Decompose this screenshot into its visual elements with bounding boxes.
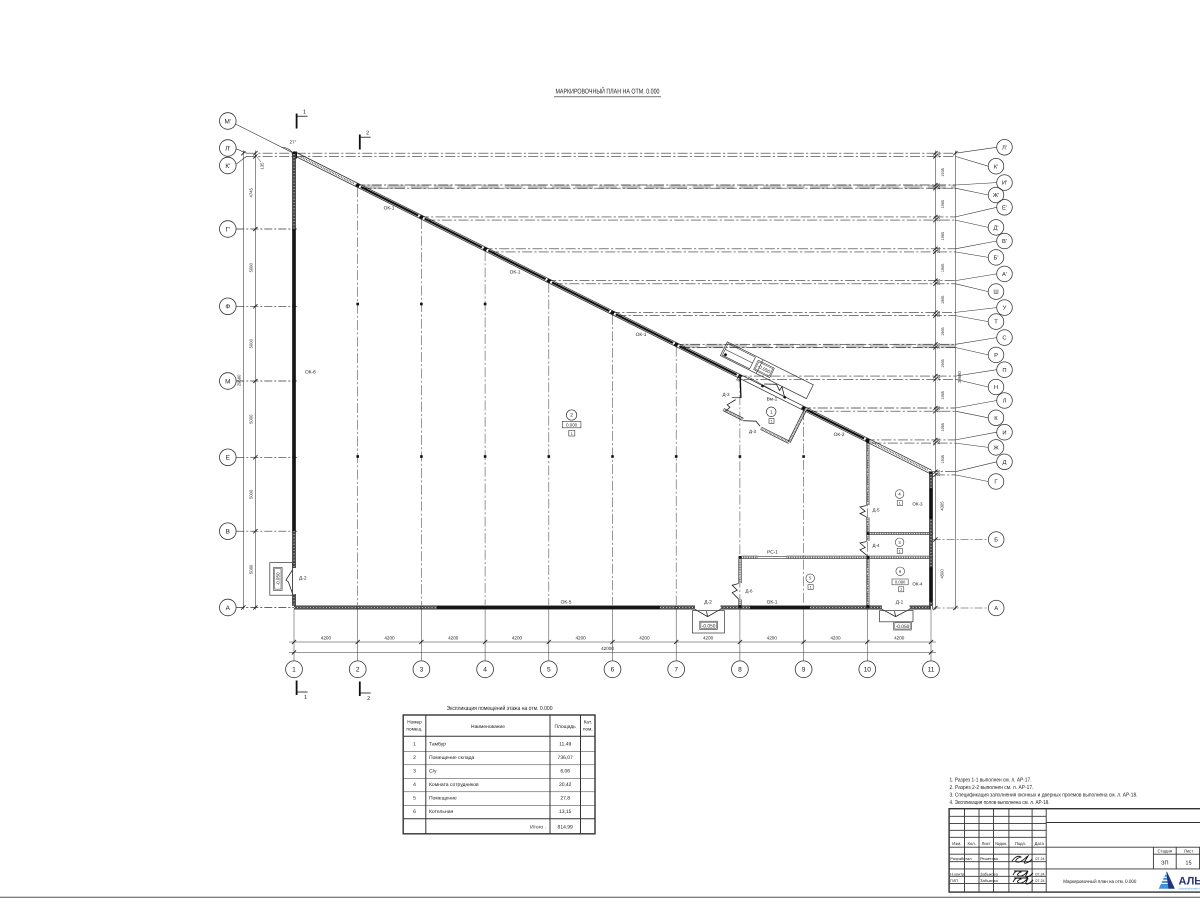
svg-text:-0.050: -0.050 [275,572,280,585]
svg-text:07.24: 07.24 [1035,872,1044,876]
svg-text:1: 1 [810,586,812,590]
svg-text:ОК-6: ОК-6 [305,370,316,376]
svg-text:ОК-1: ОК-1 [510,270,521,276]
svg-text:1965: 1965 [941,264,945,272]
svg-text:1965: 1965 [941,423,945,431]
svg-text:1965: 1965 [941,327,945,335]
svg-text:27°: 27° [290,140,297,145]
svg-text:Д-6: Д-6 [746,589,754,594]
svg-text:195: 195 [937,343,941,349]
svg-text:20,42: 20,42 [559,782,572,788]
svg-text:-0.050: -0.050 [702,623,716,629]
svg-text:135: 135 [260,162,265,170]
svg-text:Ж: Ж [993,446,999,452]
svg-text:29680: 29680 [237,374,242,386]
svg-text:1: 1 [304,695,307,701]
svg-text:4500: 4500 [940,568,945,578]
svg-text:Б: Б [994,538,998,544]
svg-text:Л': Л' [1002,145,1007,151]
svg-text:ОК-3: ОК-3 [912,502,923,507]
svg-text:195: 195 [937,406,941,412]
svg-text:6: 6 [611,667,615,674]
svg-text:5000: 5000 [249,414,254,424]
svg-text:2: 2 [367,696,370,702]
svg-text:РС-1: РС-1 [767,549,778,555]
svg-text:1: 1 [899,549,901,553]
svg-text:4745: 4745 [249,187,254,197]
svg-text:Лист: Лист [982,841,991,846]
svg-text:814,99: 814,99 [558,824,574,830]
svg-text:5080: 5080 [249,262,254,272]
svg-text:07.24: 07.24 [1035,857,1044,861]
svg-text:Е: Е [226,455,230,462]
svg-text:1: 1 [571,432,573,436]
svg-text:07.24: 07.24 [1035,879,1044,883]
svg-text:Д-3: Д-3 [749,429,757,434]
svg-text:В': В' [1002,239,1007,245]
svg-text:1965: 1965 [941,200,945,208]
svg-text:Д-1: Д-1 [896,599,904,605]
svg-text:Ш: Ш [993,290,998,296]
svg-text:5: 5 [413,796,416,802]
svg-text:4200: 4200 [448,636,459,641]
svg-text:2: 2 [900,588,902,592]
svg-text:Разработал: Разработал [950,856,971,861]
svg-text:8: 8 [738,667,742,674]
svg-text:М: М [225,378,230,385]
svg-text:Площадь: Площадь [555,724,577,730]
svg-text:1965: 1965 [941,232,945,240]
svg-text:Д-2: Д-2 [299,576,307,582]
svg-text:П: П [1002,368,1006,374]
svg-text:1935: 1935 [941,455,945,463]
svg-text:Котельная: Котельная [429,809,453,815]
svg-text:7: 7 [674,667,678,674]
svg-text:МАРКИРОВОЧНЫЙ ПЛАН НА ОТМ. 0.0: МАРКИРОВОЧНЫЙ ПЛАН НА ОТМ. 0.000 [556,87,660,96]
svg-text:4305: 4305 [940,501,945,511]
svg-text:5: 5 [547,667,551,674]
svg-text:И: И [1002,430,1006,436]
svg-text:ЗП: ЗП [1161,861,1168,867]
svg-text:И': И' [1002,181,1007,187]
svg-text:4: 4 [483,667,487,674]
svg-text:1: 1 [771,419,773,423]
svg-text:А: А [994,606,998,612]
svg-text:1935: 1935 [941,168,945,176]
svg-text:Стадия: Стадия [1157,849,1172,854]
svg-text:строительная компания: строительная компания [1179,886,1200,890]
svg-text:29680: 29680 [957,371,962,383]
svg-text:№док.: №док. [995,841,1007,846]
svg-text:Лист: Лист [1184,849,1193,854]
svg-text:4200: 4200 [321,636,332,641]
svg-text:195: 195 [937,215,941,221]
svg-text:4. Экспликация полов выполнена: 4. Экспликация полов выполнена см. л. АР… [950,800,1050,806]
svg-text:1: 1 [899,502,901,506]
svg-text:-0.050: -0.050 [896,624,910,630]
svg-text:195: 195 [937,438,941,444]
svg-text:Д: Д [1003,460,1007,466]
svg-text:4200: 4200 [767,636,778,641]
svg-text:0.000: 0.000 [566,422,578,427]
svg-text:Р: Р [994,353,998,359]
svg-text:5000: 5000 [249,489,254,499]
svg-text:3: 3 [413,769,416,775]
svg-text:В: В [226,529,230,536]
svg-text:3: 3 [420,667,424,674]
svg-text:Помещение склада: Помещение склада [429,755,475,761]
svg-text:4200: 4200 [384,636,395,641]
svg-text:Подп.: Подп. [1015,841,1026,846]
svg-text:5080: 5080 [249,564,254,574]
svg-text:ГИП: ГИП [950,878,958,883]
svg-text:10: 10 [864,667,872,674]
svg-text:Экспликация помещений этажа на: Экспликация помещений этажа на отм. 0.00… [447,705,554,712]
svg-text:195: 195 [937,375,941,381]
svg-text:С: С [1002,335,1006,342]
svg-text:195: 195 [937,152,941,158]
svg-text:3. Спецификация заполнения око: 3. Спецификация заполнения оконных и две… [950,792,1138,799]
svg-text:Комната сотрудников: Комната сотрудников [429,782,479,788]
svg-text:пом.: пом. [583,727,593,732]
svg-text:А': А' [1002,272,1007,278]
svg-text:Маркировочный план на отм. 0.0: Маркировочный план на отм. 0.000 [1063,879,1136,885]
svg-text:195: 195 [937,247,941,253]
svg-text:Кол.: Кол. [968,841,976,846]
svg-text:ОК-1: ОК-1 [767,599,778,605]
svg-text:Б': Б' [994,256,999,262]
svg-text:4200: 4200 [703,636,714,641]
svg-text:Помещение: Помещение [429,796,457,802]
svg-text:1: 1 [303,110,306,116]
svg-text:1: 1 [292,667,296,674]
svg-text:С/у: С/у [429,769,437,775]
svg-text:4: 4 [413,782,416,788]
svg-text:ОК-4: ОК-4 [912,582,923,587]
svg-text:Л': Л' [225,145,230,152]
svg-text:1: 1 [413,742,416,748]
svg-text:1965: 1965 [941,296,945,304]
svg-text:Н: Н [994,385,998,391]
svg-text:0.080: 0.080 [895,580,906,585]
svg-text:Дата: Дата [1035,841,1045,846]
svg-text:13,15: 13,15 [559,809,572,815]
svg-text:1965: 1965 [941,359,945,367]
svg-text:К': К' [225,163,230,170]
svg-text:2: 2 [366,131,369,137]
svg-text:Г': Г' [225,226,230,233]
svg-text:ОК-1: ОК-1 [384,206,395,212]
svg-text:195: 195 [937,183,941,189]
svg-text:помещ.: помещ. [406,727,422,732]
svg-text:9: 9 [802,667,806,674]
svg-text:15: 15 [1185,861,1191,867]
svg-text:2: 2 [413,755,416,761]
svg-text:ОК-5: ОК-5 [561,599,572,605]
svg-text:Л: Л [1003,399,1007,405]
svg-text:Итого .: Итого . [530,824,546,830]
svg-text:5000: 5000 [249,338,254,348]
svg-text:Забыкова: Забыкова [980,878,998,883]
svg-text:27,8: 27,8 [560,796,570,802]
svg-text:ОК-1: ОК-1 [636,332,647,338]
svg-text:К': К' [994,164,998,170]
svg-text:195: 195 [937,470,941,476]
svg-text:Кат.: Кат. [584,720,592,725]
svg-text:42000: 42000 [601,646,614,651]
svg-text:Е': Е' [1002,205,1007,211]
svg-text:ОК-2: ОК-2 [834,432,845,438]
svg-text:Д-5: Д-5 [873,508,881,513]
svg-text:195: 195 [937,311,941,317]
svg-text:Д-2: Д-2 [704,599,712,605]
svg-text:195: 195 [937,279,941,285]
svg-text:Н.контр: Н.контр [950,871,964,876]
svg-text:Забыкова: Забыкова [980,871,998,876]
svg-text:6,06: 6,06 [560,769,570,775]
svg-text:2: 2 [356,667,360,674]
svg-text:1. Разрез 1-1 выполнен см. л.: 1. Разрез 1-1 выполнен см. л. АР-17. [950,778,1032,784]
svg-text:А: А [226,605,231,612]
svg-text:11: 11 [928,667,935,674]
svg-text:1965: 1965 [941,391,945,399]
svg-text:4200: 4200 [830,636,841,641]
svg-text:4200: 4200 [894,636,905,641]
svg-text:4200: 4200 [512,636,523,641]
svg-text:Тамбур: Тамбур [429,742,446,748]
svg-text:Т: Т [994,320,998,326]
svg-text:4200: 4200 [575,636,586,641]
svg-text:Ф: Ф [225,304,230,311]
svg-text:Наименование: Наименование [471,724,505,730]
svg-text:Номер: Номер [407,720,422,725]
svg-text:Д': Д' [993,226,998,232]
svg-text:Изм.: Изм. [952,841,961,846]
svg-text:Д-3: Д-3 [722,392,730,397]
svg-text:У: У [1003,306,1007,312]
svg-text:Решетова: Решетова [980,856,999,861]
svg-text:11,49: 11,49 [559,742,571,748]
svg-text:2: 2 [570,413,573,419]
svg-text:Д-4: Д-4 [873,543,881,548]
svg-text:Ж': Ж' [993,193,999,199]
svg-text:736,07: 736,07 [558,755,574,761]
svg-text:4200: 4200 [639,636,650,641]
svg-text:М': М' [225,118,232,125]
svg-text:Вм-1: Вм-1 [767,397,778,403]
svg-text:6: 6 [413,809,416,815]
svg-text:2. Разрез 2-2 выполнен см. л.: 2. Разрез 2-2 выполнен см. л. АР-17. [950,785,1034,791]
